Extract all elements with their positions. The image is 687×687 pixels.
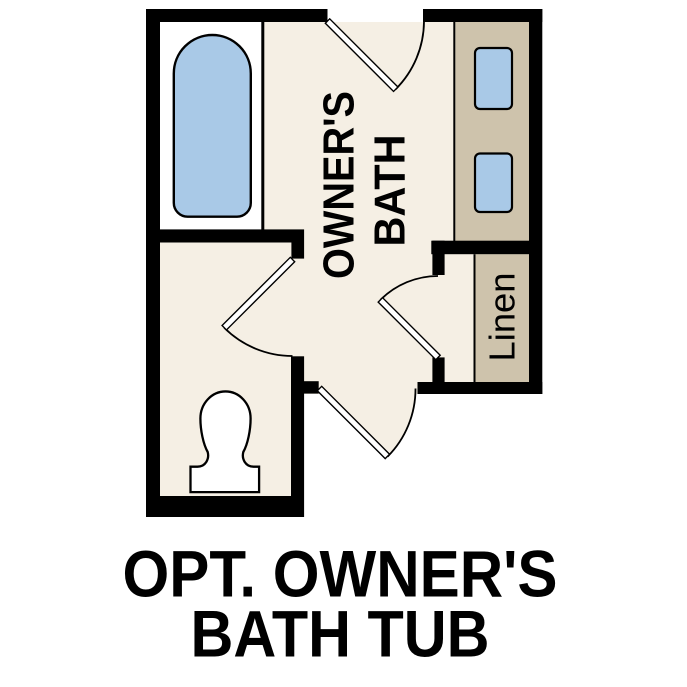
svg-text:BATH TUB: BATH TUB <box>191 597 490 671</box>
svg-text:BATH: BATH <box>366 135 415 247</box>
svg-text:Linen: Linen <box>482 273 523 362</box>
svg-text:OWNER'S: OWNER'S <box>315 91 364 279</box>
